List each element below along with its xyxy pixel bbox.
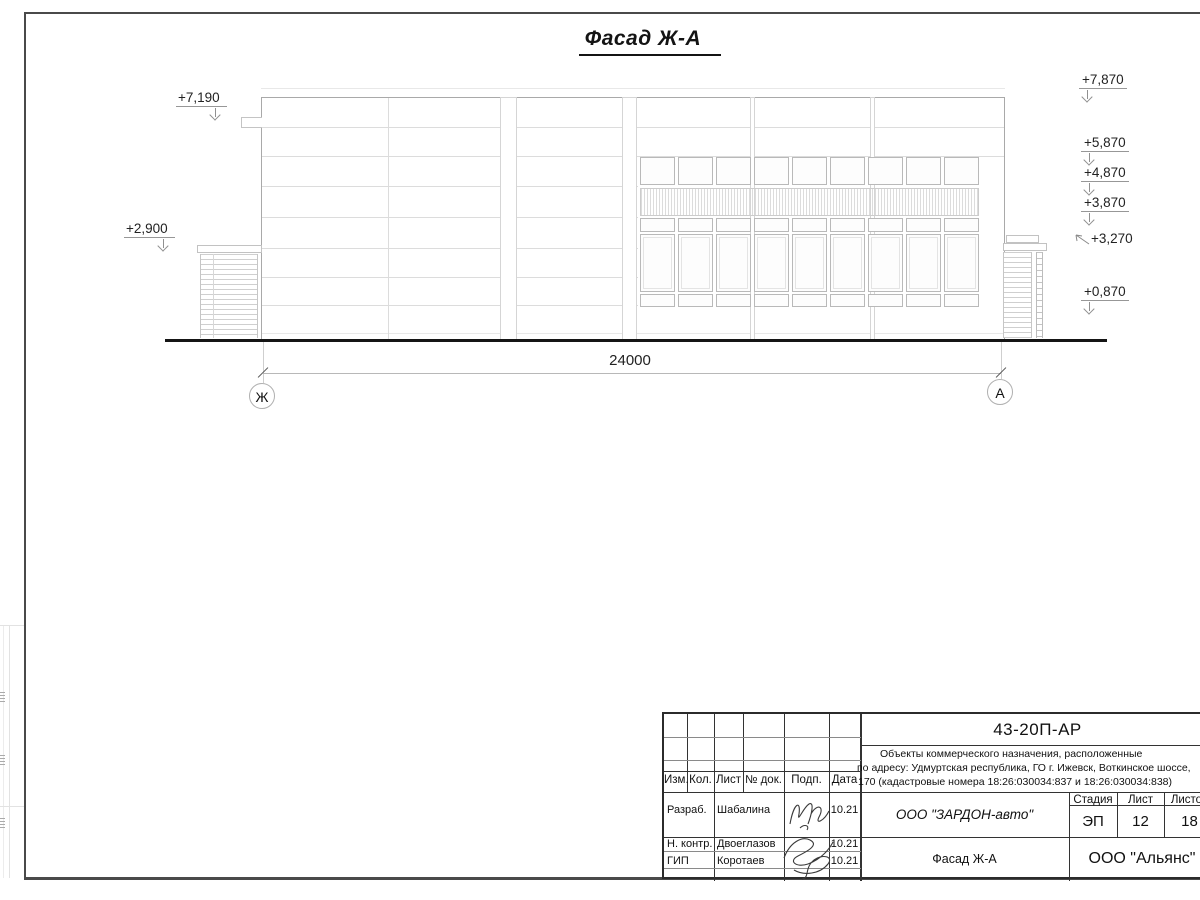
sheets-label: Листов: [1164, 794, 1200, 806]
panel-joint: [262, 305, 638, 306]
window: [754, 218, 789, 232]
window: [830, 294, 865, 307]
project-description-line: 170 (кадастровые номера 18:26:030034:837…: [858, 776, 1172, 788]
stage-label: Стадия: [1069, 794, 1117, 806]
doc-number: 43-20П-АР: [860, 720, 1200, 740]
window: [792, 218, 827, 232]
vent-unit-louvers: [200, 254, 258, 338]
panel-joint-vertical: [388, 98, 389, 340]
panel-joint: [262, 186, 638, 187]
col-header-list: Лист: [714, 774, 743, 786]
col-header-kol: Кол.: [687, 774, 714, 786]
panel-joint: [262, 217, 638, 218]
stage-value: ЭП: [1069, 813, 1117, 830]
window: [792, 294, 827, 307]
window: [640, 157, 675, 185]
signature-dvoeglazov-korotaev: [776, 830, 838, 880]
title-block-line: [860, 745, 1200, 746]
binding-strip-line: [0, 625, 24, 626]
window: [830, 157, 865, 185]
elevation-value: +0,870: [1081, 284, 1129, 301]
window: [906, 157, 941, 185]
window: [754, 294, 789, 307]
window: [716, 157, 751, 185]
dimension-line: [263, 373, 1001, 374]
window: [830, 234, 865, 292]
col-header-podp: Подп.: [784, 774, 829, 786]
col-header-data: Дата: [829, 774, 860, 786]
window: [678, 294, 713, 307]
window: [944, 294, 979, 307]
window: [792, 234, 827, 292]
window-row: [640, 294, 979, 307]
binding-strip-line: [9, 625, 10, 878]
elevation-arrow-icon: [163, 239, 164, 248]
pilaster: [500, 97, 517, 341]
elevation-mark: +3,870: [1081, 195, 1129, 212]
elevation-arrow-icon: [215, 108, 216, 117]
binding-strip-mark: [0, 818, 5, 828]
title-block-line: [664, 771, 861, 772]
window: [716, 218, 751, 232]
window: [716, 234, 751, 292]
sheet-title: Фасад Ж-А: [860, 852, 1069, 866]
window-row: [640, 234, 979, 292]
project-description-line: по адресу: Удмуртская республика, ГО г. …: [857, 762, 1191, 774]
vent-unit-cap: [1003, 243, 1047, 251]
dimension-text: 24000: [560, 352, 700, 369]
louver-band: [640, 188, 979, 216]
row-name: Шабалина: [717, 804, 770, 816]
pilaster: [622, 97, 637, 341]
vent-unit-cap: [197, 245, 262, 253]
elevation-mark: +7,870: [1079, 72, 1127, 89]
window-row: [640, 218, 979, 232]
vent-unit-louvers: [1003, 252, 1032, 338]
binding-strip-mark: [0, 755, 5, 765]
project-description-line: Объекты коммерческого назначения, распол…: [880, 748, 1142, 760]
elevation-value: +2,900: [124, 221, 175, 238]
vent-unit-cap: [1006, 235, 1039, 243]
sheet-label: Лист: [1117, 794, 1164, 806]
vent-unit-divider: [213, 254, 214, 338]
window: [640, 294, 675, 307]
row-role: Н. контр.: [667, 838, 712, 850]
title-block-line: [664, 737, 861, 738]
elevation-arrow-icon: [1089, 153, 1090, 162]
window: [906, 234, 941, 292]
window: [716, 294, 751, 307]
window: [868, 218, 903, 232]
window: [906, 218, 941, 232]
extension-line: [1001, 342, 1002, 379]
leader-arrow-icon: [1073, 232, 1091, 246]
client-company: ООО "ЗАРДОН-авто": [860, 807, 1069, 822]
elevation-value: +3,270: [1088, 231, 1136, 247]
window: [678, 234, 713, 292]
window: [678, 157, 713, 185]
row-name: Коротаев: [717, 855, 765, 867]
title-block: Изм. Кол. Лист № док. Подп. Дата Разраб.…: [662, 712, 1200, 879]
elevation-value: +7,870: [1079, 72, 1127, 89]
binding-strip-line: [3, 625, 4, 878]
elevation-value: +4,870: [1081, 165, 1129, 182]
window: [792, 157, 827, 185]
row-role: ГИП: [667, 855, 689, 867]
ground-line: [165, 339, 1107, 342]
elevation-arrow-icon: [1089, 183, 1090, 192]
window: [944, 157, 979, 185]
window: [640, 218, 675, 232]
elevation-value: +5,870: [1081, 135, 1129, 152]
elevation-value: +3,870: [1081, 195, 1129, 212]
elevation-mark: +7,190: [176, 90, 227, 107]
panel-joint: [262, 248, 638, 249]
axis-bubble: А: [987, 379, 1013, 405]
title-block-line: [714, 714, 715, 881]
sheet: { "drawing": { "title": "Фасад Ж-А", "di…: [0, 0, 1200, 900]
elevation-arrow-icon: [1087, 90, 1088, 99]
elevation-mark: +4,870: [1081, 165, 1129, 182]
row-date: 10.21: [829, 804, 860, 816]
window: [830, 218, 865, 232]
sheets-value: 18: [1164, 813, 1200, 830]
col-header-izm: Изм.: [664, 774, 687, 786]
axis-bubble: Ж: [249, 383, 275, 409]
drawing-title: Фасад Ж-А: [455, 27, 845, 56]
contractor-company: ООО "Альянс": [1069, 850, 1200, 868]
elevation-arrow-icon: [1089, 213, 1090, 222]
window: [868, 157, 903, 185]
window: [754, 234, 789, 292]
window: [944, 218, 979, 232]
window: [640, 234, 675, 292]
title-block-line: [664, 792, 1200, 793]
title-block-line: [664, 760, 861, 761]
sheet-frame-top: [24, 12, 1200, 14]
extension-line: [263, 342, 264, 383]
col-header-doc: № док.: [743, 774, 784, 786]
sheet-frame-left: [24, 12, 26, 879]
elevation-mark: +3,270: [1088, 231, 1136, 247]
elevation-mark: +5,870: [1081, 135, 1129, 152]
ladder: [1036, 252, 1043, 338]
parapet-line: [261, 88, 1005, 89]
window: [906, 294, 941, 307]
window-row: [640, 157, 979, 185]
binding-strip-line: [0, 806, 24, 807]
elevation-value: +7,190: [176, 90, 227, 107]
row-name: Двоеглазов: [717, 838, 775, 850]
window: [678, 218, 713, 232]
binding-strip-mark: [0, 692, 5, 702]
elevation-mark: +2,900: [124, 221, 175, 238]
roof-ledge: [241, 117, 262, 128]
elevation-arrow-icon: [1089, 302, 1090, 311]
window: [754, 157, 789, 185]
sheet-value: 12: [1117, 813, 1164, 830]
drawing-title-text: Фасад Ж-А: [579, 27, 721, 56]
elevation-mark: +0,870: [1081, 284, 1129, 301]
row-role: Разраб.: [667, 804, 707, 816]
window: [868, 234, 903, 292]
window: [868, 294, 903, 307]
panel-joint: [262, 277, 638, 278]
window: [944, 234, 979, 292]
